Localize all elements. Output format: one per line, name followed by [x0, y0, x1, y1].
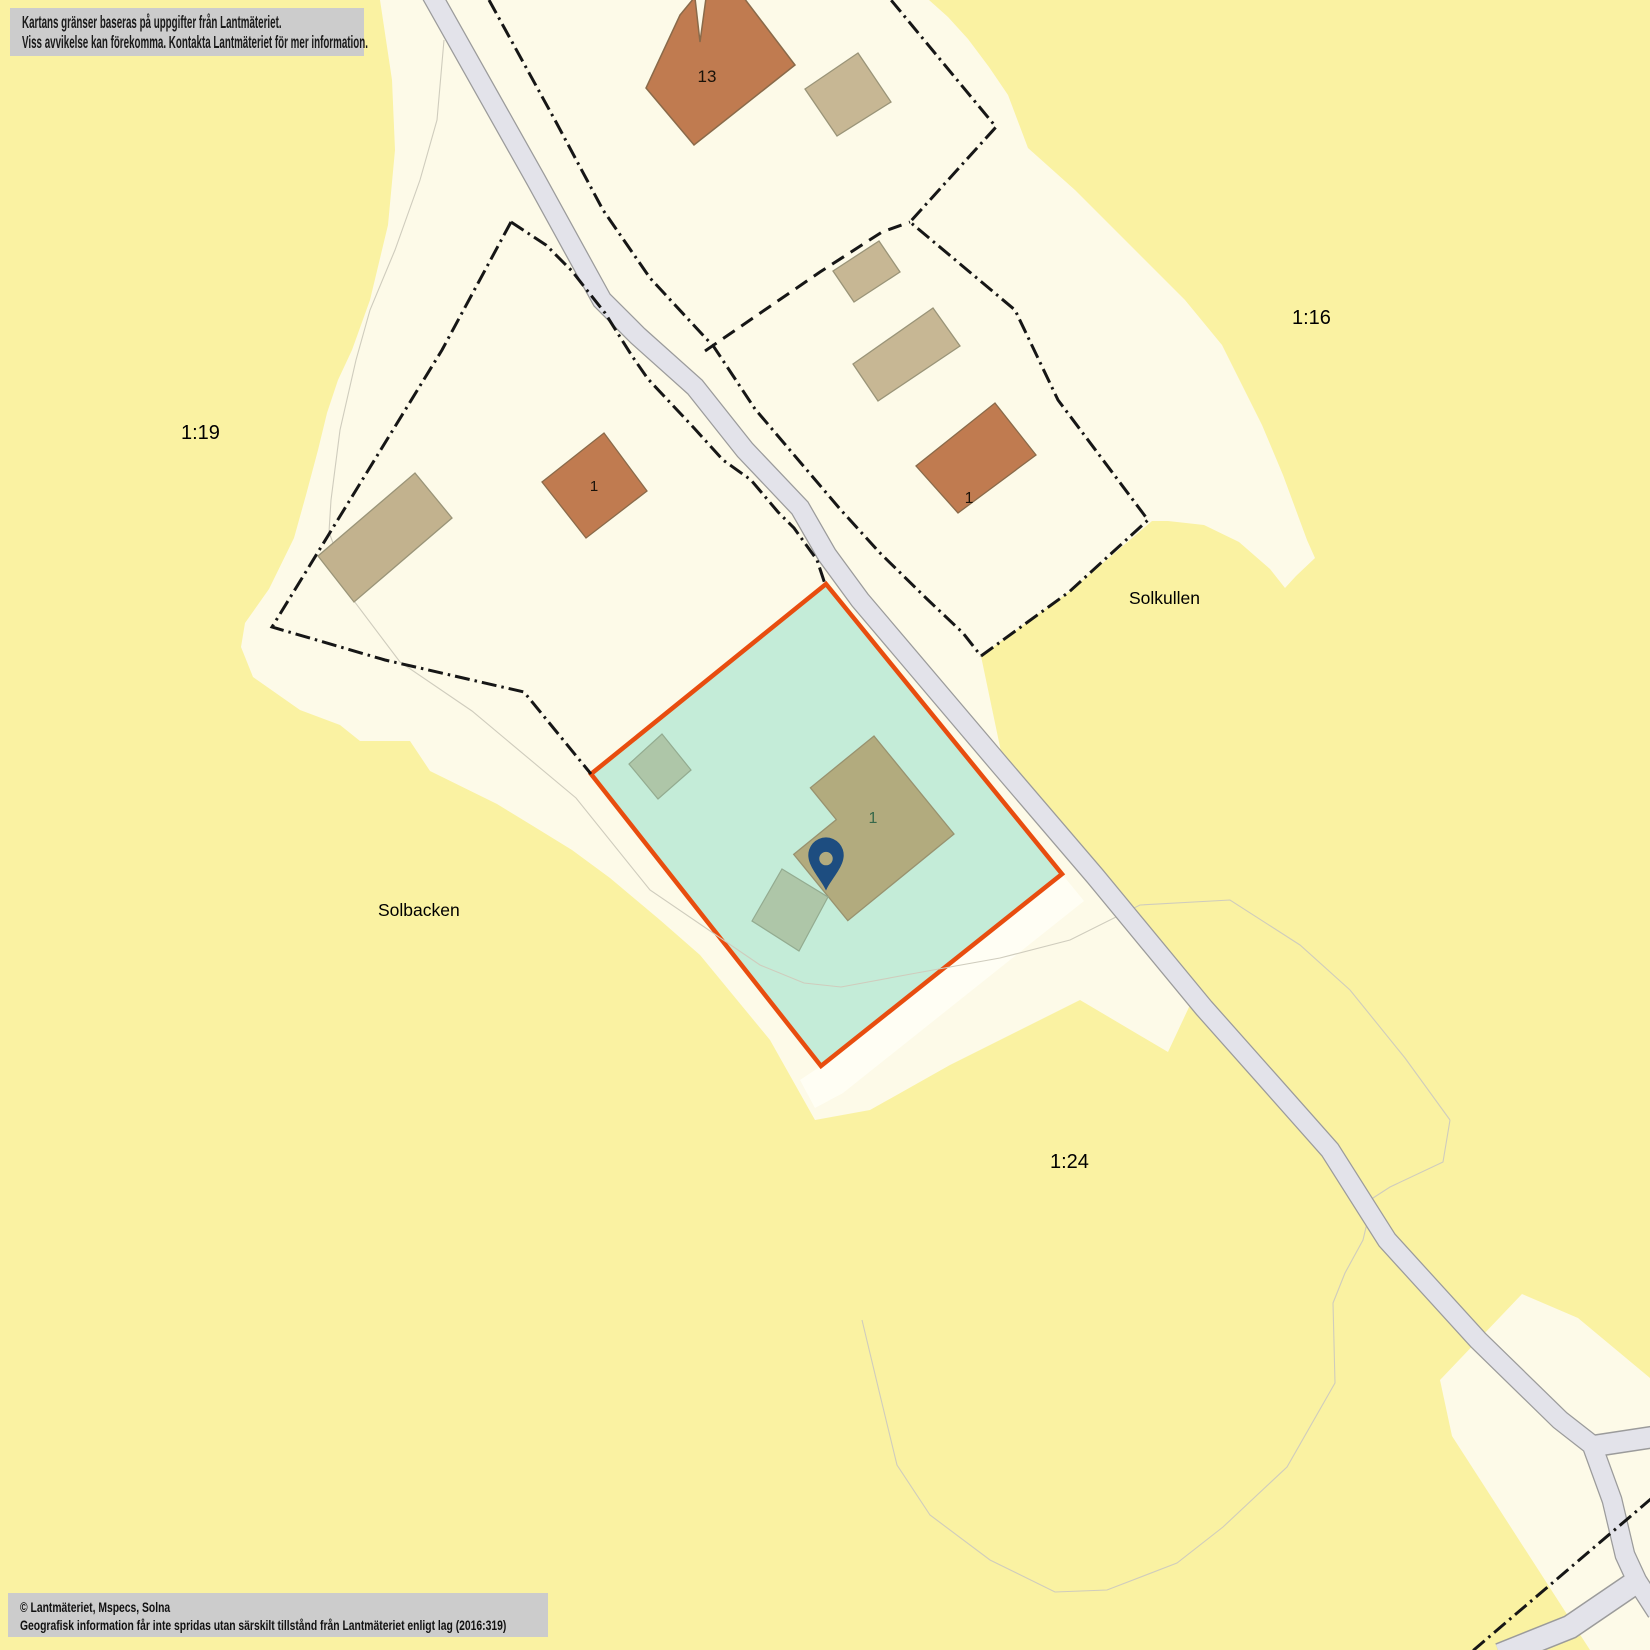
svg-text:Solkullen: Solkullen	[1129, 588, 1200, 608]
svg-text:Viss avvikelse kan förekomma.: Viss avvikelse kan förekomma. Kontakta L…	[22, 33, 368, 53]
svg-text:1:24: 1:24	[1050, 1151, 1089, 1173]
svg-text:1: 1	[869, 810, 878, 827]
svg-text:© Lantmäteriet, Mspecs, Solna: © Lantmäteriet, Mspecs, Solna	[20, 1599, 170, 1615]
svg-text:1: 1	[590, 478, 598, 495]
svg-text:Solbacken: Solbacken	[378, 900, 460, 920]
svg-text:Kartans gränser baseras på upp: Kartans gränser baseras på uppgifter frå…	[22, 13, 282, 33]
svg-text:Geografisk information får int: Geografisk information får inte spridas …	[20, 1617, 506, 1633]
svg-text:13: 13	[698, 67, 717, 86]
svg-text:1: 1	[965, 490, 974, 507]
svg-text:1:16: 1:16	[1292, 307, 1331, 329]
svg-text:1:19: 1:19	[181, 422, 220, 444]
